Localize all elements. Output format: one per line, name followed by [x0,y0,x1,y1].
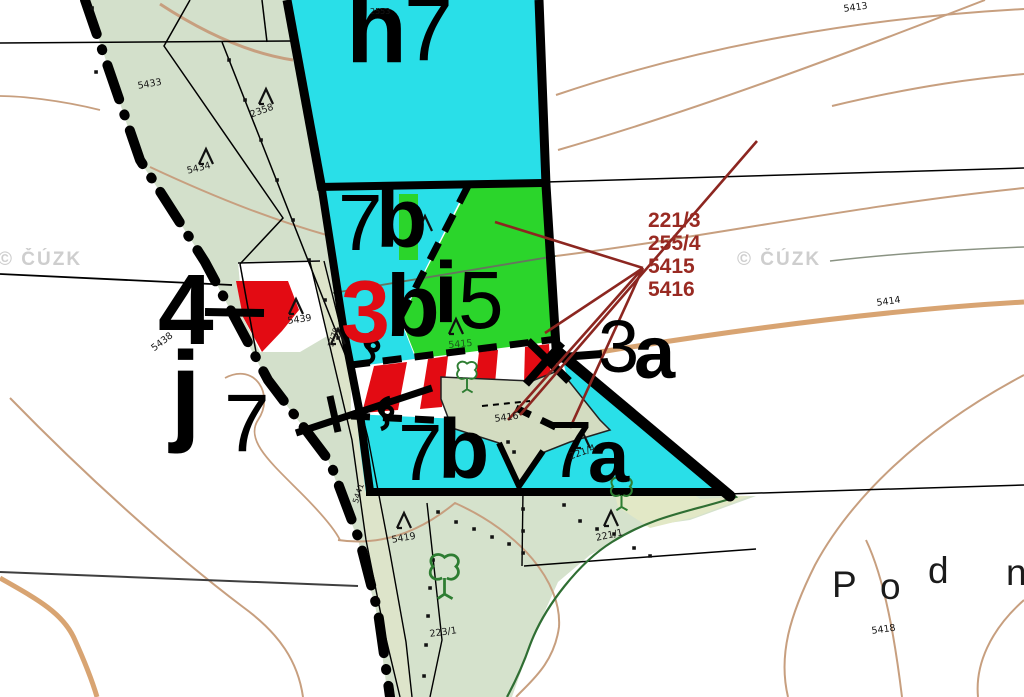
stand-label-3b-b: b [386,262,440,350]
stand-label-j7-7: 7 [224,383,270,465]
place-name-letter-n: n [1006,554,1024,591]
parcel-number-2553: 2553 [370,8,390,16]
stand-label-i5-i: i [434,250,458,336]
stand-label-7b-lower-7: 7 [398,413,443,493]
stand-label-j7-j: j [170,336,201,448]
annotation-parcel-221-3: 221/3 [648,210,701,231]
leader-3a [562,354,602,357]
annotation-parcel-5415: 5415 [648,256,695,277]
stand-label-7b-upper-b: b [376,176,427,260]
stand-label-7a-a: a [588,420,629,494]
cuzk-watermark-left: © ČÚZK [0,250,82,269]
place-name-letter-o: o [880,568,901,605]
cuzk-watermark-right: © ČÚZK [737,250,821,269]
annotation-parcel-255-4: 255/4 [648,233,701,254]
stand-label-3b-3: 3 [341,268,390,356]
place-name-letter-d: d [928,552,949,589]
stand-label-3a-3: 3 [598,310,639,384]
map-viewport: h 7 7 b 3 b i 5 3 a 7 b 7 a 4 j 7 221/3 … [0,0,1024,697]
stand-label-h7-7: 7 [404,0,453,74]
parcel-number-5415-small: 5415 [448,339,473,351]
stand-label-3a-a: a [634,316,675,390]
place-name-letter-p: P [832,566,857,603]
stand-label-7b-lower-b: b [438,407,489,491]
stand-label-i5-5: 5 [458,260,504,342]
annotation-parcel-5416: 5416 [648,279,695,300]
